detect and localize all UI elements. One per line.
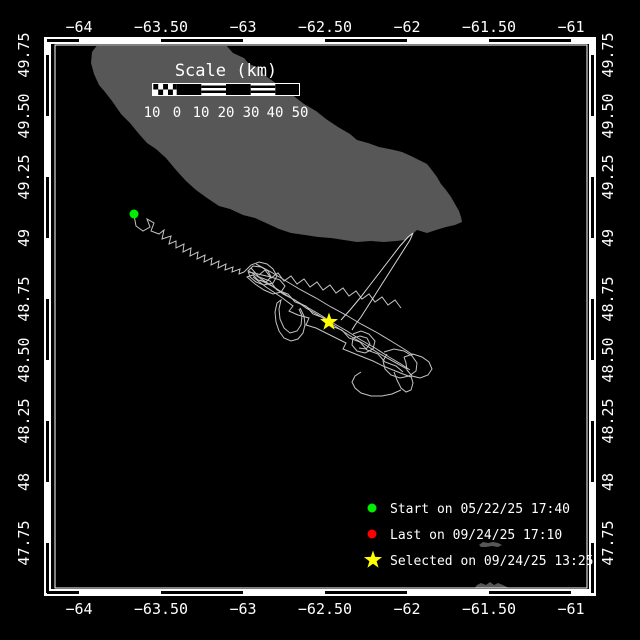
lat-label: 48.50 <box>15 337 33 382</box>
start-position-marker[interactable] <box>130 210 139 219</box>
lat-label: 48 <box>599 473 617 491</box>
lon-label: −63.50 <box>134 18 188 36</box>
lon-label: −63 <box>229 600 256 618</box>
lat-label: 47.75 <box>599 520 617 565</box>
lat-label: 48 <box>15 473 33 491</box>
lat-axis-right: 49.75 49.50 49.25 49 48.75 48.50 48.25 4… <box>599 32 617 565</box>
lon-label: −64 <box>65 600 92 618</box>
scale-tick: 40 <box>267 105 284 121</box>
lat-label: 48.50 <box>599 337 617 382</box>
legend-last-icon <box>368 530 377 539</box>
lon-label: −61.50 <box>462 18 516 36</box>
scale-tick: 10 <box>144 105 161 121</box>
legend-start-icon <box>368 504 377 513</box>
scale-tick: 50 <box>292 105 309 121</box>
map-background <box>0 0 640 640</box>
scale-tick: 20 <box>218 105 235 121</box>
scale-tick: 10 <box>193 105 210 121</box>
lat-label: 48.75 <box>15 276 33 321</box>
lon-label: −62.50 <box>298 18 352 36</box>
lat-label: 49.75 <box>599 32 617 77</box>
lat-label: 49 <box>15 229 33 247</box>
lat-label: 49.25 <box>599 154 617 199</box>
lon-label: −63.50 <box>134 600 188 618</box>
legend-start-label: Start on 05/22/25 17:40 <box>390 502 570 517</box>
legend-last-label: Last on 09/24/25 17:10 <box>390 528 562 543</box>
scale-tick: 0 <box>173 105 181 121</box>
lon-label: −62 <box>393 18 420 36</box>
legend-selected-label: Selected on 09/24/25 13:25 <box>390 554 594 569</box>
lat-axis-left: 49.75 49.50 49.25 49 48.75 48.50 48.25 4… <box>15 32 33 565</box>
lat-label: 49.50 <box>15 93 33 138</box>
lat-label: 47.75 <box>15 520 33 565</box>
lon-label: −62 <box>393 600 420 618</box>
lat-label: 48.25 <box>599 398 617 443</box>
lon-axis-bottom: −64 −63.50 −63 −62.50 −62 −61.50 −61 <box>65 600 584 618</box>
lat-label: 49 <box>599 229 617 247</box>
lat-label: 49.75 <box>15 32 33 77</box>
lon-label: −62.50 <box>298 600 352 618</box>
scale-tick: 30 <box>243 105 260 121</box>
lon-label: −64 <box>65 18 92 36</box>
lat-label: 48.25 <box>15 398 33 443</box>
lat-label: 49.25 <box>15 154 33 199</box>
lon-label: −61 <box>557 18 584 36</box>
lon-label: −63 <box>229 18 256 36</box>
lon-axis-top: −64 −63.50 −63 −62.50 −62 −61.50 −61 <box>65 18 584 36</box>
scale-bar-title: Scale (km) <box>175 61 277 81</box>
legend: Start on 05/22/25 17:40 Last on 09/24/25… <box>364 502 594 569</box>
track-map: −64 −63.50 −63 −62.50 −62 −61.50 −61 −64… <box>0 0 640 640</box>
lon-label: −61.50 <box>462 600 516 618</box>
lat-label: 48.75 <box>599 276 617 321</box>
lat-label: 49.50 <box>599 93 617 138</box>
lon-label: −61 <box>557 600 584 618</box>
